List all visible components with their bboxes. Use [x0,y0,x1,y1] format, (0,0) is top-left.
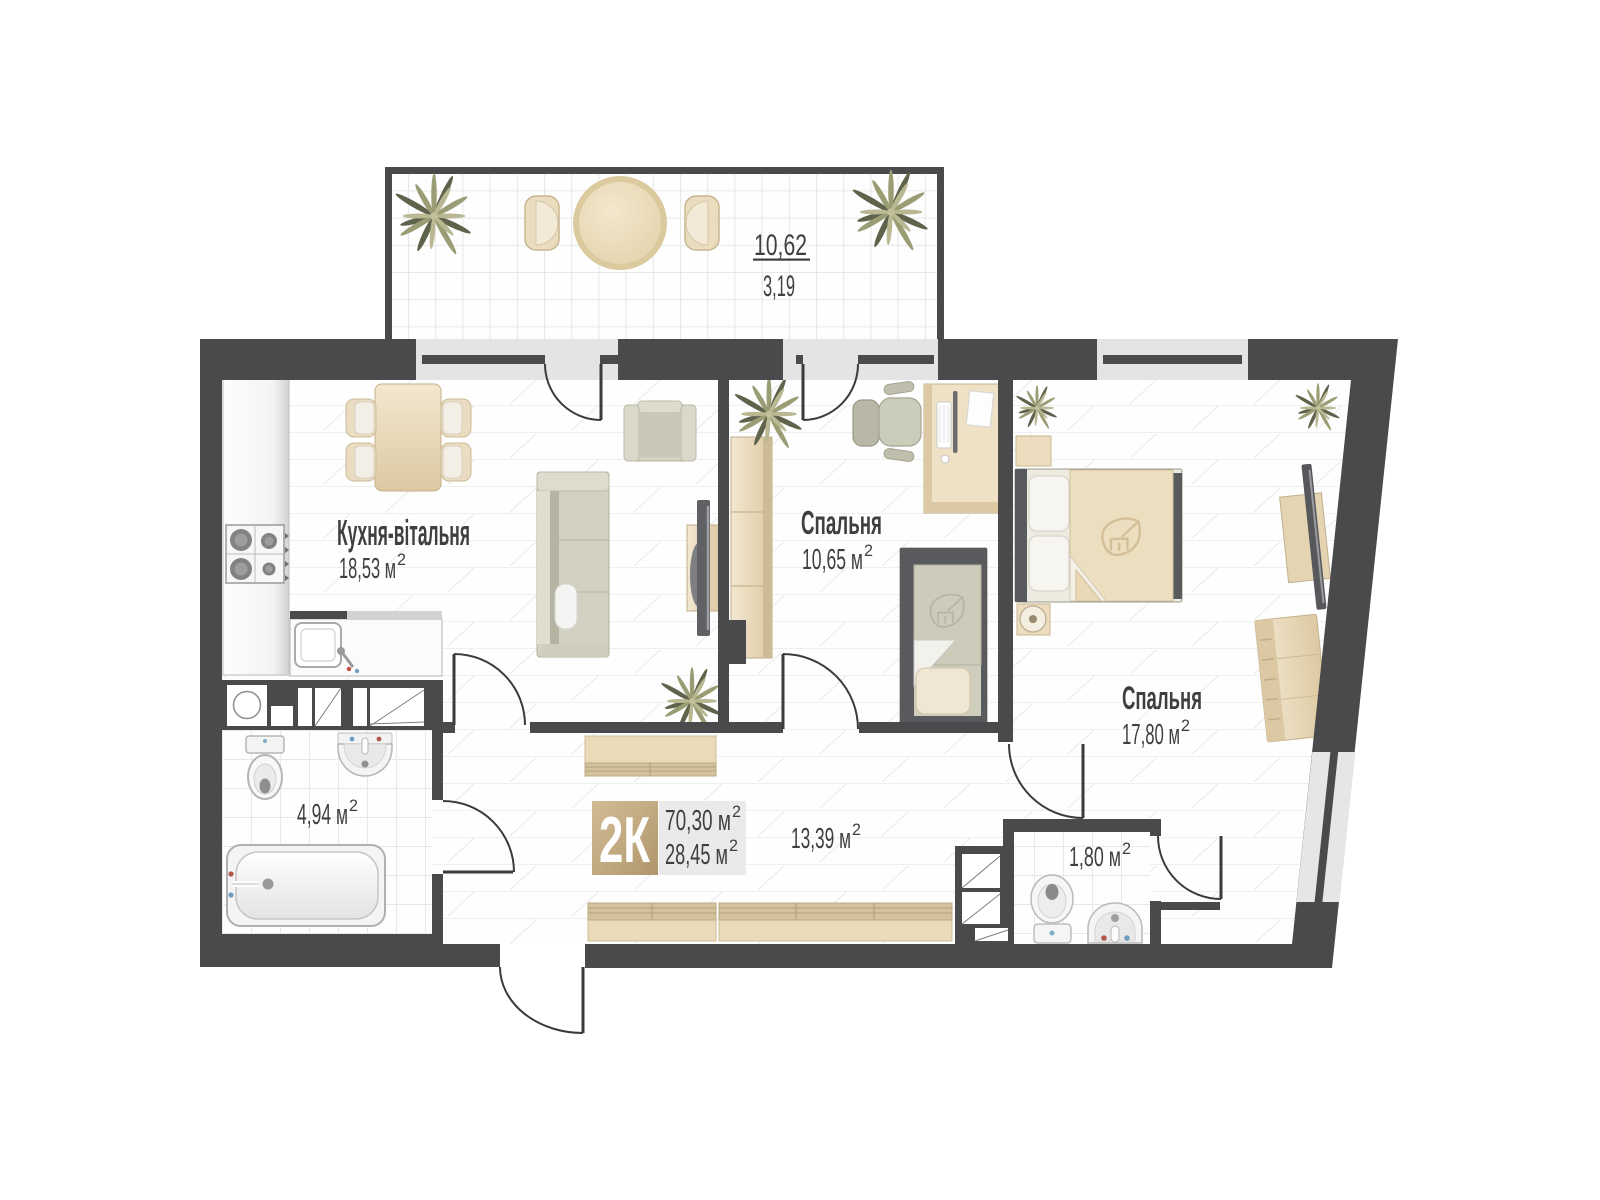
svg-text:10,62: 10,62 [754,229,807,262]
svg-text:2: 2 [732,802,741,821]
svg-text:2: 2 [852,820,861,839]
svg-text:2: 2 [1122,839,1131,858]
svg-text:2К: 2К [599,803,650,876]
svg-text:4,94 м: 4,94 м [297,799,348,831]
svg-text:28,45 м: 28,45 м [665,839,728,871]
svg-text:70,30 м: 70,30 м [665,805,731,837]
svg-text:2: 2 [397,550,406,569]
svg-text:10,65 м: 10,65 м [802,544,863,576]
svg-text:3,19: 3,19 [763,270,795,303]
svg-text:13,39 м: 13,39 м [791,823,851,855]
svg-text:Кухня-вітальня: Кухня-вітальня [337,512,470,553]
svg-text:2: 2 [1181,716,1190,735]
svg-text:2: 2 [349,796,358,815]
svg-text:2: 2 [864,541,873,560]
svg-text:2: 2 [729,836,738,855]
svg-text:1,80 м: 1,80 м [1069,841,1121,872]
svg-text:18,53 м: 18,53 м [339,553,396,585]
svg-text:Спальня: Спальня [801,504,882,541]
svg-text:Спальня: Спальня [1122,680,1202,716]
svg-text:17,80 м: 17,80 м [1122,719,1180,751]
